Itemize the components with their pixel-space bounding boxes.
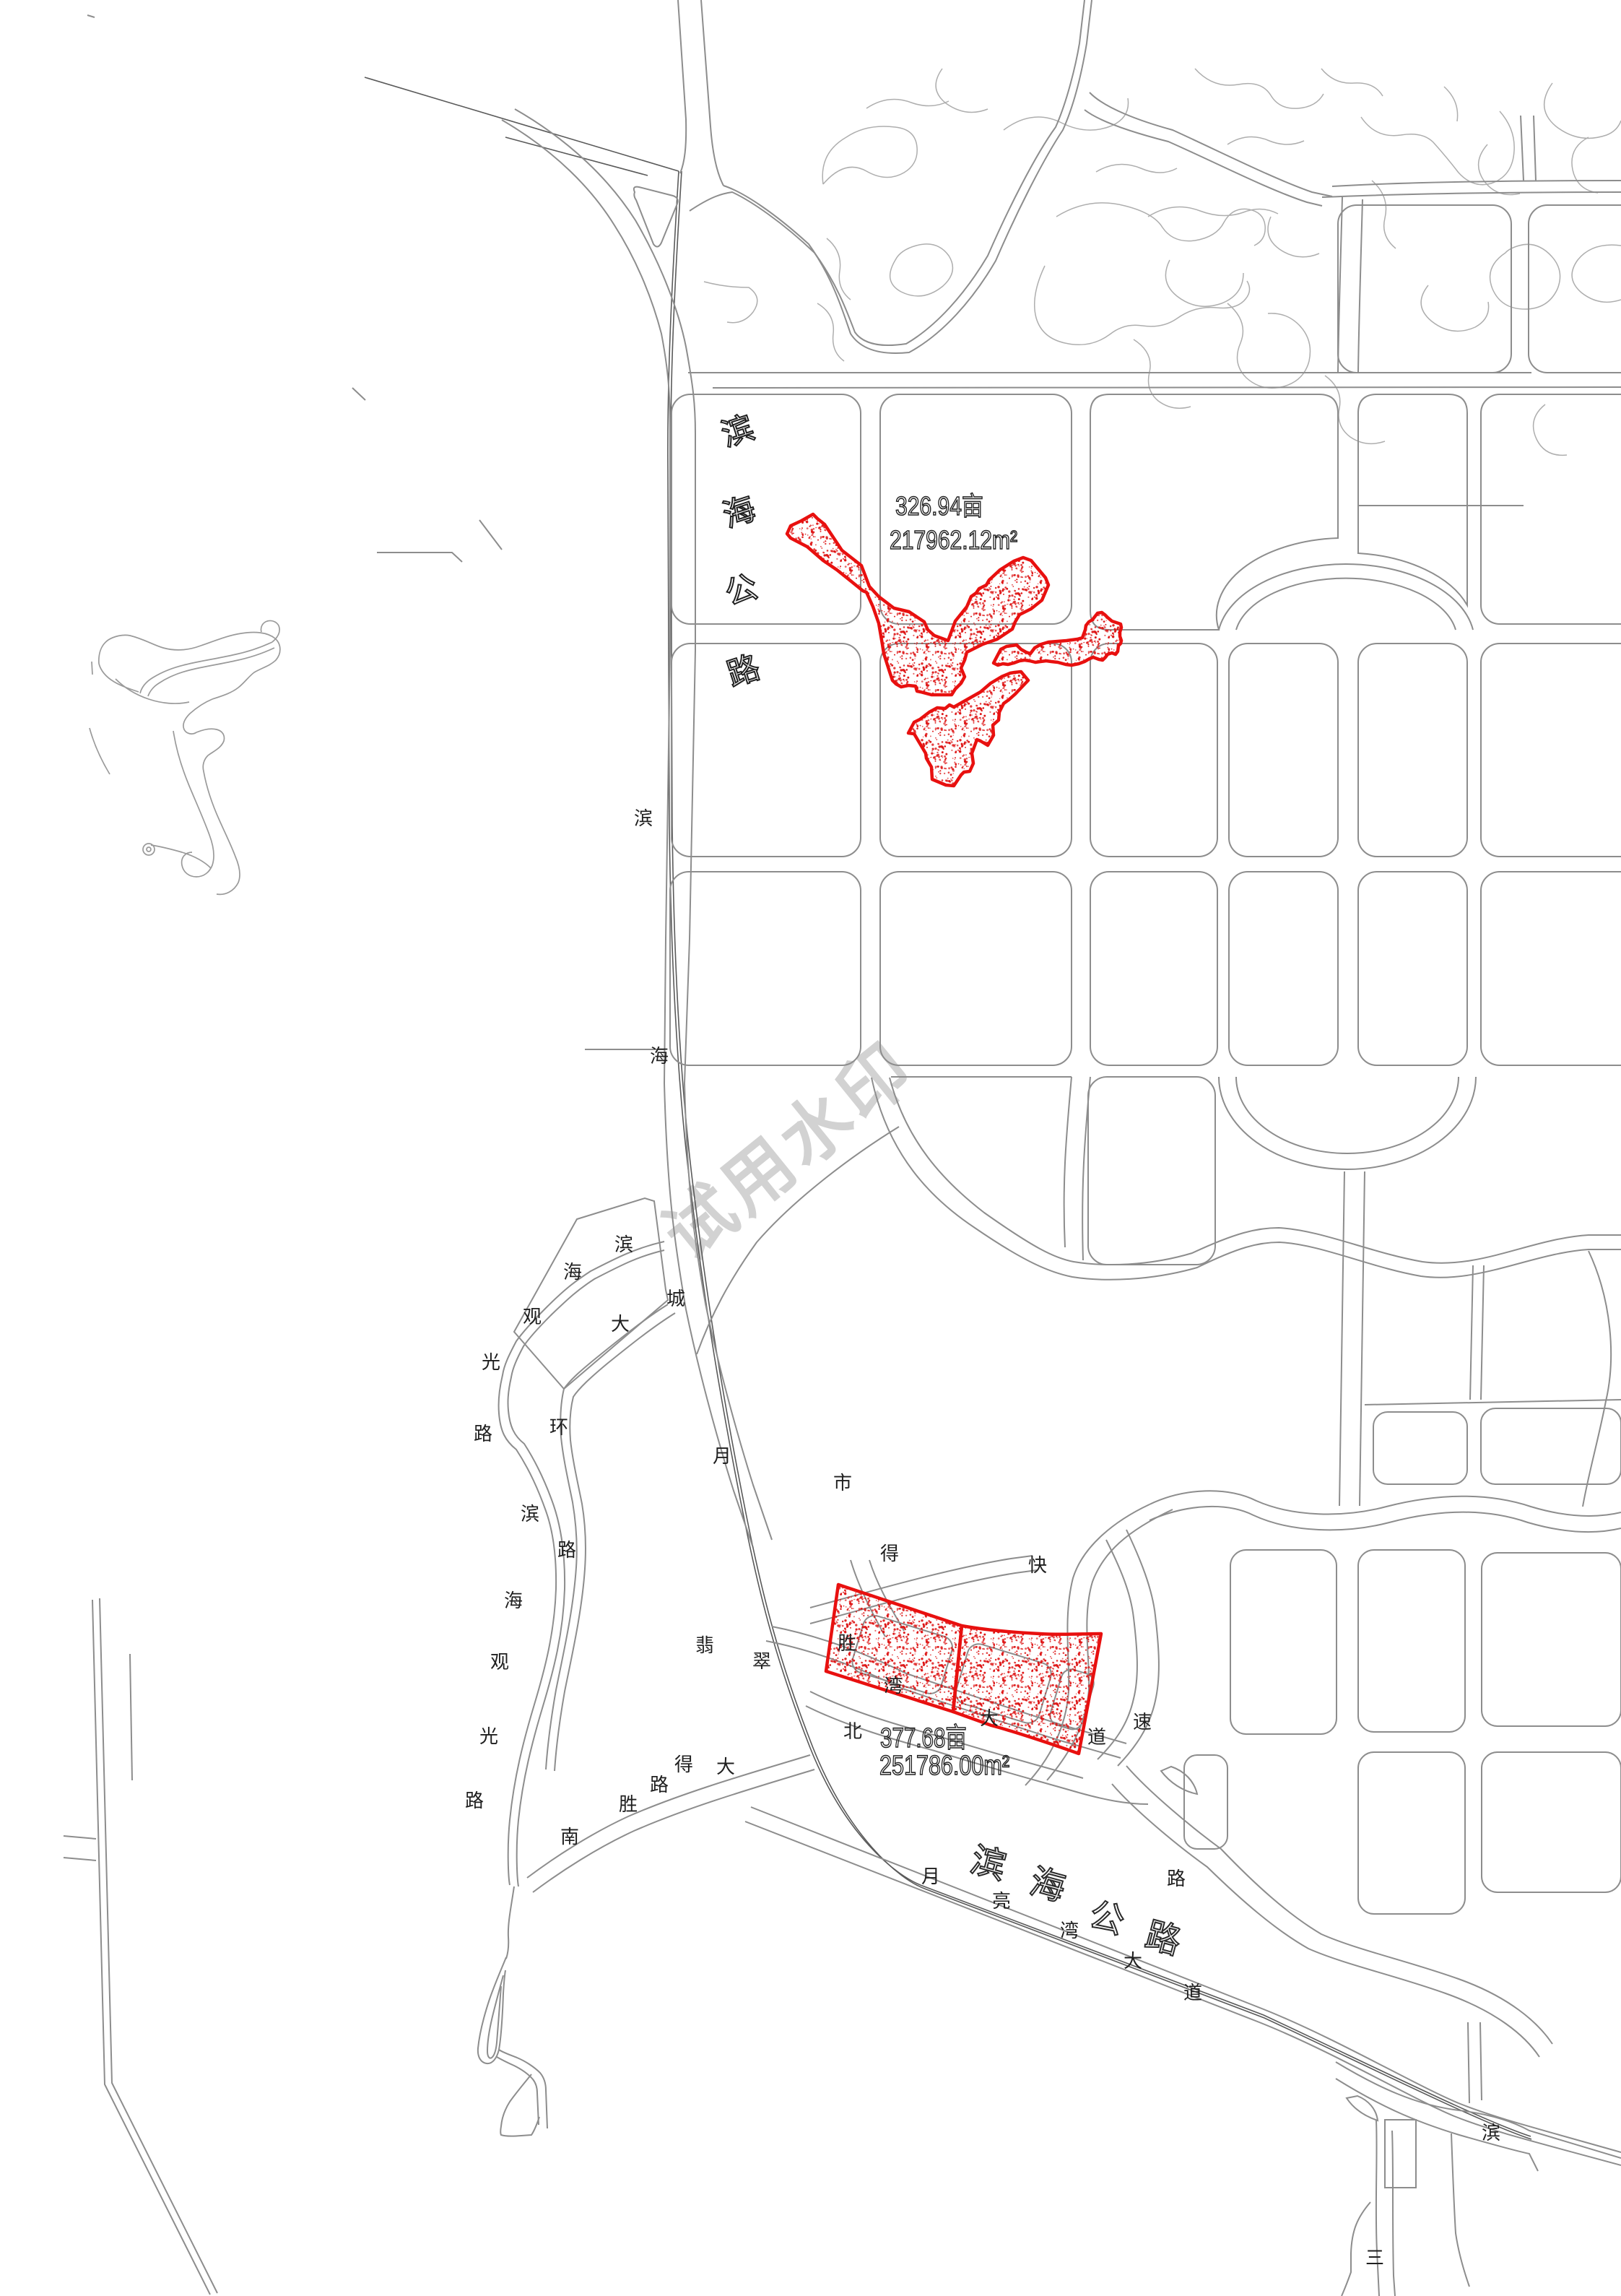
svg-text:滨: 滨	[1482, 2122, 1500, 2144]
svg-text:路: 路	[474, 1423, 492, 1444]
svg-text:道: 道	[1087, 1726, 1106, 1748]
svg-text:大: 大	[980, 1707, 999, 1729]
svg-text:得: 得	[880, 1543, 899, 1564]
svg-text:南: 南	[560, 1826, 579, 1847]
svg-text:滨: 滨	[521, 1503, 539, 1525]
svg-text:胜: 胜	[838, 1632, 856, 1654]
svg-text:亮: 亮	[992, 1890, 1011, 1912]
svg-text:三: 三	[1365, 2247, 1384, 2269]
svg-text:海: 海	[504, 1590, 523, 1611]
svg-text:路: 路	[1167, 1868, 1186, 1889]
svg-text:观: 观	[490, 1651, 509, 1673]
svg-text:胜: 胜	[619, 1793, 638, 1815]
svg-text:快: 快	[1028, 1554, 1047, 1576]
svg-text:观: 观	[523, 1306, 542, 1327]
svg-text:路: 路	[557, 1539, 576, 1561]
svg-text:湾: 湾	[884, 1675, 903, 1697]
svg-text:光: 光	[479, 1725, 498, 1747]
svg-text:251786.00m²: 251786.00m²	[879, 1751, 1009, 1781]
svg-text:326.94亩: 326.94亩	[895, 491, 983, 521]
svg-text:速: 速	[1133, 1711, 1152, 1733]
svg-text:环: 环	[549, 1416, 568, 1438]
svg-text:海: 海	[650, 1045, 669, 1067]
svg-text:路: 路	[650, 1774, 669, 1795]
svg-text:月: 月	[921, 1866, 940, 1887]
svg-text:城: 城	[666, 1288, 685, 1309]
svg-text:大: 大	[1124, 1950, 1142, 1972]
svg-text:湾: 湾	[1060, 1920, 1079, 1941]
svg-text:北: 北	[843, 1720, 862, 1742]
svg-text:翠: 翠	[752, 1650, 771, 1672]
svg-text:月: 月	[713, 1445, 731, 1467]
svg-text:市: 市	[833, 1472, 852, 1494]
svg-text:路: 路	[465, 1790, 484, 1811]
svg-text:得: 得	[674, 1754, 693, 1775]
svg-text:翡: 翡	[695, 1634, 714, 1656]
svg-text:大: 大	[611, 1313, 630, 1335]
svg-text:道: 道	[1183, 1982, 1202, 2003]
svg-text:大: 大	[716, 1756, 735, 1777]
svg-text:光: 光	[482, 1351, 500, 1373]
svg-text:217962.12m²: 217962.12m²	[890, 525, 1017, 555]
svg-text:滨: 滨	[614, 1234, 633, 1255]
svg-text:滨: 滨	[634, 807, 653, 829]
svg-text:海: 海	[563, 1261, 582, 1283]
svg-text:377.68亩: 377.68亩	[880, 1723, 967, 1754]
